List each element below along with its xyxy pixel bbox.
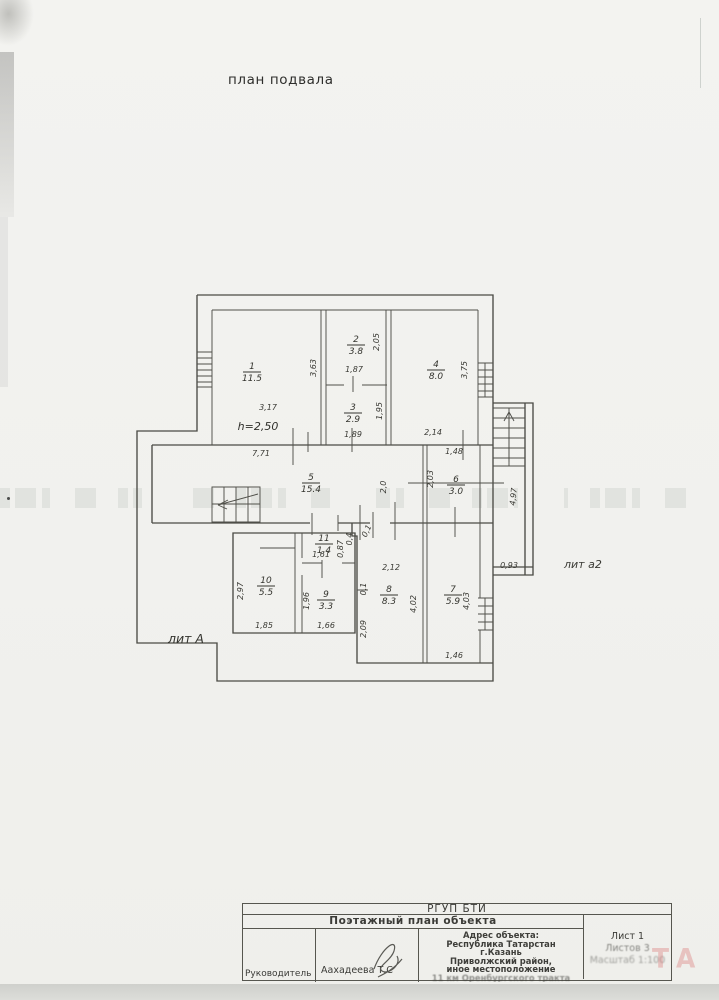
- title-block: РГУП БТИ Поэтажный план объекта Руководи…: [242, 903, 672, 981]
- dimension-label: 1,61: [312, 550, 330, 559]
- svg-text:8.3: 8.3: [382, 597, 397, 607]
- sheet-number: Лист 1: [584, 931, 671, 943]
- svg-text:1: 1: [249, 362, 255, 372]
- svg-text:6: 6: [453, 475, 459, 485]
- height-note: h=2,50: [238, 420, 279, 433]
- dimension-label: 1,95: [375, 402, 384, 420]
- walls: [137, 295, 533, 681]
- svg-text:3.0: 3.0: [449, 487, 464, 497]
- dimension-label: 2,09: [359, 620, 368, 638]
- address-line: 11 км Оренбургского тракта: [419, 974, 583, 983]
- dimension-label: 1,48: [445, 447, 463, 456]
- floor-plan-svg: 111.523.832.948.0515.463.075.988.393.310…: [0, 0, 719, 1000]
- dimension-label: 2,0: [379, 481, 388, 494]
- dimension-label: 1,96: [302, 592, 311, 610]
- dimension-label: 0,87: [336, 539, 345, 558]
- svg-text:3.3: 3.3: [319, 602, 334, 612]
- svg-text:11: 11: [318, 534, 329, 544]
- room-label: 93.3: [317, 590, 335, 612]
- room-label: 75.9: [444, 585, 462, 607]
- dimension-label: 1,46: [445, 651, 463, 660]
- signature-icon: [368, 929, 414, 979]
- room-label: 23.8: [347, 335, 365, 357]
- svg-text:15.4: 15.4: [301, 485, 321, 495]
- svg-text:11.5: 11.5: [242, 374, 262, 384]
- room-label: 63.0: [447, 475, 465, 497]
- svg-text:5: 5: [308, 473, 314, 483]
- room-label: 111.5: [242, 362, 262, 384]
- svg-text:2.9: 2.9: [346, 415, 361, 425]
- room-label: 105.5: [257, 576, 275, 598]
- svg-text:4: 4: [433, 360, 439, 370]
- plan-labels: 111.523.832.948.0515.463.075.988.393.310…: [236, 333, 519, 660]
- dimension-label: 4,03: [462, 592, 471, 610]
- svg-text:3: 3: [350, 403, 356, 413]
- dimension-label: 1,89: [344, 430, 362, 439]
- address-cell: Адрес объекта: Республика Татарстан г.Ка…: [419, 929, 583, 982]
- signer-cell: Аахадеева Т.С: [316, 929, 419, 982]
- svg-text:2: 2: [353, 335, 359, 345]
- scan-bottom-band: [0, 984, 719, 1000]
- dimension-label: 3,17: [259, 403, 278, 412]
- svg-text:7: 7: [450, 585, 456, 595]
- dimension-label: 2,05: [372, 333, 381, 351]
- scanned-page: план подвала: [0, 0, 719, 1000]
- dimension-label: 2,03: [426, 470, 435, 488]
- annex-letter-label: лит а2: [563, 558, 602, 571]
- room-label: 48.0: [427, 360, 445, 382]
- dimension-label: 4,02: [409, 595, 418, 613]
- svg-text:5.5: 5.5: [259, 588, 274, 598]
- svg-text:8: 8: [386, 585, 392, 595]
- building-letter-label: лит А: [167, 631, 204, 646]
- svg-text:9: 9: [323, 590, 329, 600]
- role-label: Руководитель: [243, 929, 316, 982]
- doc-type: Поэтажный план объекта: [243, 915, 583, 929]
- svg-text:8.0: 8.0: [429, 372, 444, 382]
- svg-text:3.8: 3.8: [349, 347, 364, 357]
- dimension-label: 1,85: [255, 621, 273, 630]
- dimension-label: 7,71: [252, 449, 270, 458]
- dimension-label: 0,1: [359, 583, 368, 596]
- room-label: 515.4: [301, 473, 321, 495]
- dimension-label: 0,1: [360, 523, 374, 538]
- dimension-label: 4,97: [508, 487, 519, 507]
- pink-stamp-mark: ТА: [652, 943, 702, 973]
- dimension-label: 3,75: [460, 361, 469, 379]
- dimension-label: 2,97: [236, 581, 245, 600]
- svg-text:10: 10: [260, 576, 272, 586]
- dimension-label: 2,12: [382, 563, 400, 572]
- room-label: 88.3: [380, 585, 398, 607]
- dimension-label: 2,14: [424, 428, 442, 437]
- dimension-label: 1,87: [345, 365, 364, 374]
- org-name: РГУП БТИ: [243, 904, 671, 915]
- dimension-label: 0,4: [345, 533, 354, 546]
- room-label: 32.9: [344, 403, 362, 425]
- dimension-label: 3,63: [309, 359, 318, 377]
- dimension-label: 1,66: [317, 621, 335, 630]
- svg-text:5.9: 5.9: [446, 597, 461, 607]
- dimension-label: 0,93: [500, 561, 518, 570]
